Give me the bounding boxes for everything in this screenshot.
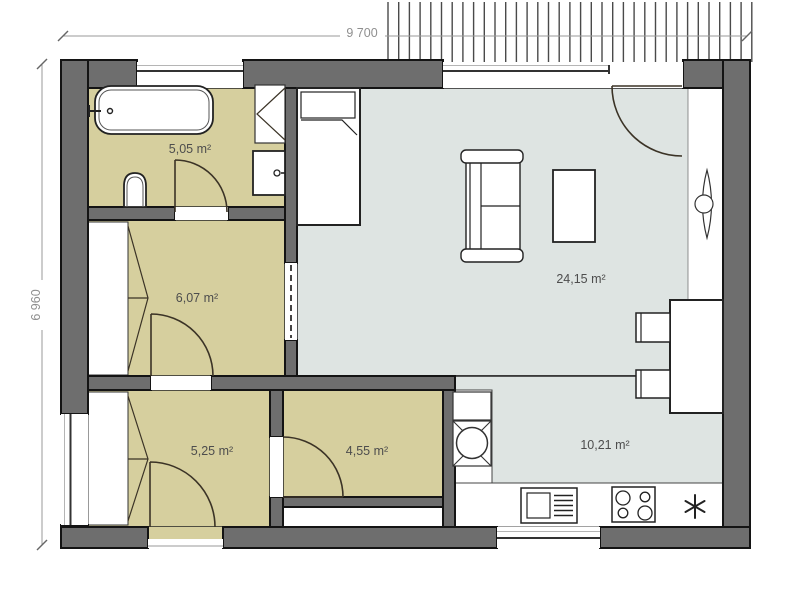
dimension-horizontal: 9 700 <box>58 26 752 41</box>
terrace-door-threshold <box>148 527 223 539</box>
wall-bathroom-b <box>228 207 285 220</box>
bathroom-door-opening <box>175 207 228 220</box>
wall-bedroom-storage-b <box>270 497 283 527</box>
dishwasher-icon <box>521 488 577 523</box>
toilet-icon <box>124 173 146 207</box>
wall-bathroom-a <box>88 207 175 220</box>
tall-wardrobe <box>688 88 723 300</box>
wall-bedroom-storage-a <box>270 390 283 437</box>
storage-door-opening <box>270 437 283 497</box>
kitchen-area-label: 10,21 m² <box>580 438 629 452</box>
wall-spine-upper <box>285 88 297 263</box>
sofa-icon <box>461 150 523 262</box>
dimension-width-label: 9 700 <box>346 26 377 40</box>
wall-left-upper <box>61 60 88 414</box>
wall-bottom-left <box>61 527 148 548</box>
chair-icon <box>636 313 670 342</box>
entrance-door-opening <box>610 62 683 88</box>
shower-icon <box>255 85 285 143</box>
kitchen-sink-icon <box>453 421 491 466</box>
wall-spine-lower <box>285 340 297 376</box>
cooktop-icon <box>612 487 655 522</box>
wall-mid-b <box>211 376 455 390</box>
mirror-knob-icon <box>695 195 713 213</box>
pergola-hatching-icon <box>388 2 752 62</box>
storage-area-label: 4,55 m² <box>346 444 388 458</box>
wall-bottom-middle <box>223 527 497 548</box>
bathtub-icon <box>89 86 213 134</box>
cabinet-icon <box>453 392 491 420</box>
wall-storage-bottom <box>283 497 443 507</box>
dining-table-icon <box>670 300 723 413</box>
chair-icon <box>636 370 670 398</box>
bed-icon <box>297 88 360 225</box>
hall-bedroom-door-opening <box>151 376 211 390</box>
floor-plan: 9 700 6 960 <box>0 0 800 595</box>
bathroom-area-label: 5,05 m² <box>169 142 211 156</box>
wall-mid-a <box>88 376 151 390</box>
dimension-vertical: 6 960 <box>29 59 47 550</box>
dimension-height-label: 6 960 <box>29 289 43 320</box>
living-area-label: 24,15 m² <box>556 272 605 286</box>
coffee-table-icon <box>553 170 595 242</box>
wall-bottom-right <box>600 527 750 548</box>
bedroom-window <box>61 414 88 525</box>
bedroom-area-label: 5,25 m² <box>191 444 233 458</box>
hall-area-label: 6,07 m² <box>176 291 218 305</box>
terrace-door-sill <box>148 539 223 548</box>
wall-top-middle <box>243 60 443 88</box>
ledge-strip <box>283 507 443 527</box>
washbasin-icon <box>253 151 286 195</box>
wall-right <box>723 60 750 548</box>
